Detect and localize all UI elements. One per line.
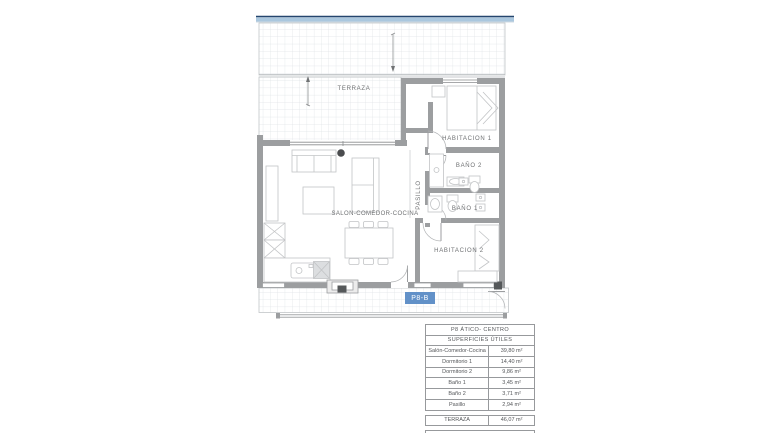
dining-table (345, 222, 393, 265)
armchair (352, 158, 379, 212)
unit-badge: P8-B (405, 292, 435, 304)
nightstand (432, 86, 445, 97)
room-label-bano2: BAÑO 2 (456, 163, 482, 169)
table-row: Baño 13,45 m² (426, 378, 535, 389)
kitchen (264, 223, 330, 282)
room-label-habitacion1: HABITACION 1 (442, 136, 492, 142)
area-value-cell: 2,94 m² (489, 399, 535, 410)
area-value-cell: 39,80 m² (489, 346, 535, 357)
superficies-utiles-table: P8 ÁTICO- CENTRO SUPERFICIES ÚTILES Saló… (425, 324, 535, 411)
balustrade (256, 17, 514, 23)
column (337, 149, 345, 157)
table-row: Dormitorio 29,86 m² (426, 367, 535, 378)
room-name-cell: Pasillo (426, 399, 489, 410)
sliding-glass-door (290, 140, 395, 146)
room-name-cell: Dormitorio 1 (426, 357, 489, 368)
area-value-cell: 14,40 m² (489, 357, 535, 368)
area-value-cell: 3,71 m² (489, 389, 535, 400)
room-name-cell: Dormitorio 2 (426, 367, 489, 378)
table-row: Dormitorio 114,40 m² (426, 357, 535, 368)
area-value-cell: 9,86 m² (489, 367, 535, 378)
area-value-cell: 46,07 m² (489, 415, 535, 426)
table-row: TERRAZA46,07 m² (426, 415, 535, 426)
room-label-bano1: BAÑO 1 (452, 206, 478, 212)
floorplan-page: TERRAZA SALON-COMEDOR-COCINA PASILLO HAB… (0, 0, 770, 433)
area-value-cell: 3,45 m² (489, 378, 535, 389)
dresser (458, 271, 497, 282)
room-label-terraza: TERRAZA (338, 86, 371, 92)
table-row: Baño 23,71 m² (426, 389, 535, 400)
table-row: Pasillo2,94 m² (426, 399, 535, 410)
room-label-salon: SALON-COMEDOR-COCINA (331, 211, 418, 217)
terrace-railing (276, 313, 507, 319)
bed-habitacion1 (432, 86, 498, 130)
room-name-cell: Salón-Comedor-Cocina (426, 346, 489, 357)
bathroom2-fixtures (430, 154, 481, 193)
entry-porch (327, 280, 358, 293)
room-name-cell: Baño 1 (426, 378, 489, 389)
room-name-cell: Baño 2 (426, 389, 489, 400)
sideboard (266, 166, 278, 221)
room-name-cell: TERRAZA (426, 415, 489, 426)
sofa (292, 150, 336, 172)
room-label-pasillo: PASILLO (416, 180, 422, 209)
terraza-table: TERRAZA46,07 m² (425, 415, 535, 427)
room-label-habitacion2: HABITACION 2 (434, 248, 484, 254)
table-subtitle: SUPERFICIES ÚTILES (426, 335, 535, 346)
table-row: Salón-Comedor-Cocina39,80 m² (426, 346, 535, 357)
coffee-table (303, 187, 334, 214)
area-tables: P8 ÁTICO- CENTRO SUPERFICIES ÚTILES Saló… (425, 324, 535, 433)
table-title: P8 ÁTICO- CENTRO (426, 325, 535, 336)
